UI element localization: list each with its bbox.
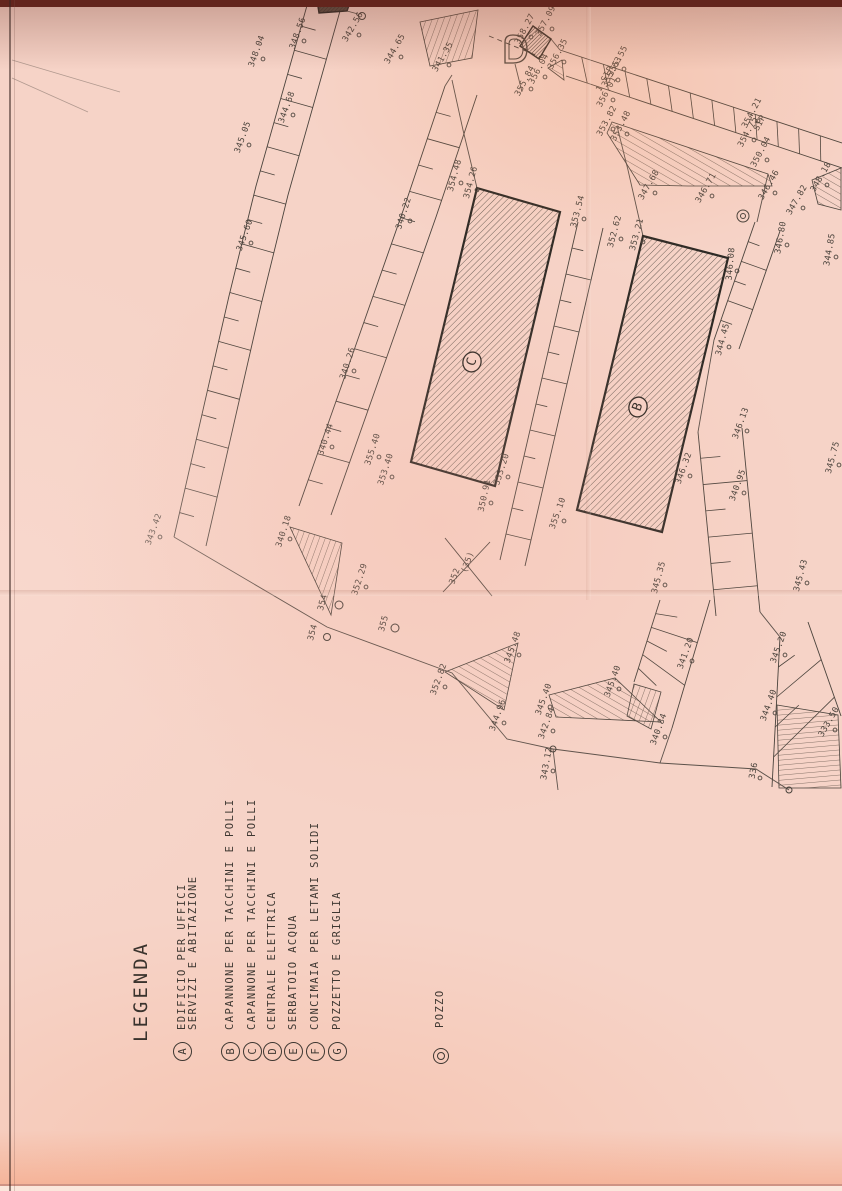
survey-point	[801, 206, 805, 210]
spot-elevation: 341.20	[676, 636, 697, 671]
svg-text:(35): (35)	[460, 550, 477, 574]
survey-point	[489, 501, 493, 505]
survey-point	[352, 369, 356, 373]
spot-elevation: 345.75	[824, 440, 842, 475]
well-circle	[391, 624, 399, 632]
svg-text:357.09: 357.09	[534, 4, 558, 38]
survey-point	[758, 776, 762, 780]
survey-point	[377, 455, 381, 459]
survey-point	[302, 39, 306, 43]
survey-point	[357, 33, 361, 37]
svg-text:346.80: 346.80	[773, 220, 789, 254]
svg-text:344.85: 344.85	[822, 232, 838, 266]
survey-point	[834, 255, 838, 259]
svg-text:340.26: 340.26	[338, 346, 358, 381]
svg-text:341.20: 341.20	[676, 636, 697, 671]
spot-elevation: 357.09	[534, 4, 558, 38]
survey-point	[517, 653, 521, 657]
svg-text:353.54: 353.54	[569, 194, 587, 229]
spot-elevation: 344.85	[822, 232, 838, 266]
spot-elevation: 340.18	[274, 514, 294, 549]
svg-text:355: 355	[377, 614, 391, 633]
spot-elevation: 354.48	[446, 158, 464, 193]
boundary-line	[760, 612, 780, 637]
svg-text:344.68: 344.68	[277, 90, 298, 125]
svg-text:346.13: 346.13	[731, 406, 752, 441]
spot-elevation: 344.65	[383, 32, 408, 66]
svg-text:350.04: 350.04	[749, 135, 773, 169]
spot-elevation: 350.91	[477, 478, 494, 512]
svg-text:347.82: 347.82	[785, 183, 810, 217]
survey-point	[562, 60, 566, 64]
survey-point	[529, 87, 533, 91]
survey-point	[562, 519, 566, 523]
survey-point	[459, 181, 463, 185]
spot-elevation: 340.95	[728, 468, 749, 503]
spot-elevation: 340.44	[316, 422, 336, 457]
survey-point	[288, 537, 292, 541]
svg-text:345.05: 345.05	[233, 120, 254, 155]
svg-text:345.20: 345.20	[769, 630, 790, 665]
svg-text:344.65: 344.65	[383, 32, 408, 66]
spot-elevation: 352.82	[429, 662, 450, 697]
svg-text:355.40: 355.40	[363, 432, 383, 467]
svg-text:340.22: 340.22	[394, 196, 414, 231]
svg-text:344.96: 344.96	[488, 698, 509, 733]
hatch-strip	[174, 2, 340, 546]
svg-text:340.44: 340.44	[316, 422, 336, 457]
spot-elevation: 355.40	[363, 432, 383, 467]
well-circle	[324, 634, 331, 641]
spot-elevation: 346.80	[773, 220, 789, 254]
building-B: B	[577, 236, 728, 532]
spot-elevation: 344.96	[488, 698, 509, 733]
survey-point	[727, 345, 731, 349]
spot-elevation: 343.42	[144, 512, 165, 547]
survey-point	[443, 685, 447, 689]
spot-elevation: 353.54	[569, 194, 587, 229]
paper-sheet: CB 342.56348.56348.04344.68345.05345.603…	[0, 0, 842, 1191]
paper-left-edge-line	[9, 0, 11, 1191]
svg-text:345.48: 345.48	[503, 630, 524, 665]
fold-crease-horizontal	[0, 590, 842, 596]
spot-elevation: 353.40	[376, 452, 396, 487]
well-circle	[737, 210, 749, 222]
slope-hatch	[290, 527, 342, 615]
spot-elevation: 348.56	[288, 16, 309, 51]
svg-text:352.82: 352.82	[429, 662, 450, 697]
paper-left-edge-line-2	[14, 0, 15, 1191]
building-C: C	[411, 188, 560, 486]
spot-elevation: 345.43	[792, 558, 810, 593]
boundary-line	[445, 75, 452, 86]
survey-point	[550, 27, 554, 31]
survey-point	[619, 237, 623, 241]
well-circle	[741, 214, 746, 219]
survey-point	[765, 158, 769, 162]
survey-point	[805, 581, 809, 585]
survey-point	[330, 445, 334, 449]
spot-elevation: (35)	[460, 550, 477, 574]
svg-text:340.18: 340.18	[274, 514, 294, 549]
survey-point	[688, 474, 692, 478]
svg-text:350.91: 350.91	[477, 478, 494, 512]
spot-elevation: 343.12	[539, 746, 555, 780]
spot-elevation: 346.08	[725, 247, 738, 281]
survey-point	[745, 429, 749, 433]
survey-point	[364, 585, 368, 589]
scan-edge-top	[0, 0, 842, 7]
survey-point	[291, 113, 295, 117]
svg-text:352.62: 352.62	[606, 214, 624, 249]
survey-point	[785, 243, 789, 247]
svg-text:354.48: 354.48	[446, 158, 464, 193]
slope-hatch	[420, 10, 478, 66]
spot-elevation: 355	[377, 614, 391, 633]
survey-point	[710, 194, 714, 198]
spot-elevation: 340.26	[338, 346, 358, 381]
svg-text:343.12: 343.12	[539, 746, 555, 780]
svg-text:353.40: 353.40	[376, 452, 396, 487]
faint-line	[12, 60, 120, 92]
scan-edge-bottom	[0, 1130, 842, 1191]
svg-text:343.42: 343.42	[144, 512, 165, 547]
faint-line	[12, 78, 88, 112]
svg-text:346.08: 346.08	[725, 247, 738, 281]
spot-elevation: 350.04	[749, 135, 773, 169]
fold-crease-vertical	[586, 0, 591, 600]
spot-elevation: 345.60	[235, 218, 256, 253]
spot-elevation: 342.56	[341, 10, 366, 44]
svg-text:345.43: 345.43	[792, 558, 810, 593]
survey-point	[247, 143, 251, 147]
survey-point	[249, 241, 253, 245]
scan-margin-bottom	[0, 1186, 842, 1191]
survey-point	[663, 735, 667, 739]
svg-text:348.56: 348.56	[288, 16, 309, 51]
survey-point	[742, 491, 746, 495]
survey-point	[653, 191, 657, 195]
survey-point	[837, 463, 841, 467]
spot-elevation: 345.20	[769, 630, 790, 665]
survey-point	[551, 729, 555, 733]
svg-text:345.75: 345.75	[824, 440, 842, 475]
spot-elevation: 346.13	[731, 406, 752, 441]
survey-point	[261, 57, 265, 61]
spot-elevation: 354	[306, 623, 320, 642]
survey-point	[611, 98, 615, 102]
survey-point	[663, 583, 667, 587]
survey-point	[390, 475, 394, 479]
svg-text:345.60: 345.60	[235, 218, 256, 253]
svg-text:340.95: 340.95	[728, 468, 749, 503]
survey-point	[506, 475, 510, 479]
spot-elevation: 344.45	[714, 322, 732, 357]
hatch-strip	[698, 428, 760, 616]
well-circle	[335, 601, 343, 609]
survey-wells	[324, 13, 793, 794]
svg-text:355.10: 355.10	[548, 496, 569, 531]
survey-point	[783, 653, 787, 657]
spot-elevation: 344.68	[277, 90, 298, 125]
survey-point	[773, 191, 777, 195]
survey-point	[399, 55, 403, 59]
svg-text:348.04: 348.04	[247, 34, 268, 69]
svg-text:342.56: 342.56	[341, 10, 366, 44]
spot-elevation: 355.10	[548, 496, 569, 531]
svg-text:354: 354	[306, 623, 320, 642]
survey-point	[543, 75, 547, 79]
spot-elevation: 345.48	[503, 630, 524, 665]
survey-point	[622, 67, 626, 71]
spot-elevation: 352.62	[606, 214, 624, 249]
survey-point	[502, 721, 506, 725]
survey-point	[551, 769, 555, 773]
spot-elevation: 345.05	[233, 120, 254, 155]
survey-point	[447, 63, 451, 67]
spot-elevation: 348.04	[247, 34, 268, 69]
spot-elevation: 347.82	[785, 183, 810, 217]
survey-point	[158, 535, 162, 539]
svg-text:344.45: 344.45	[714, 322, 732, 357]
spot-elevation: 340.22	[394, 196, 414, 231]
